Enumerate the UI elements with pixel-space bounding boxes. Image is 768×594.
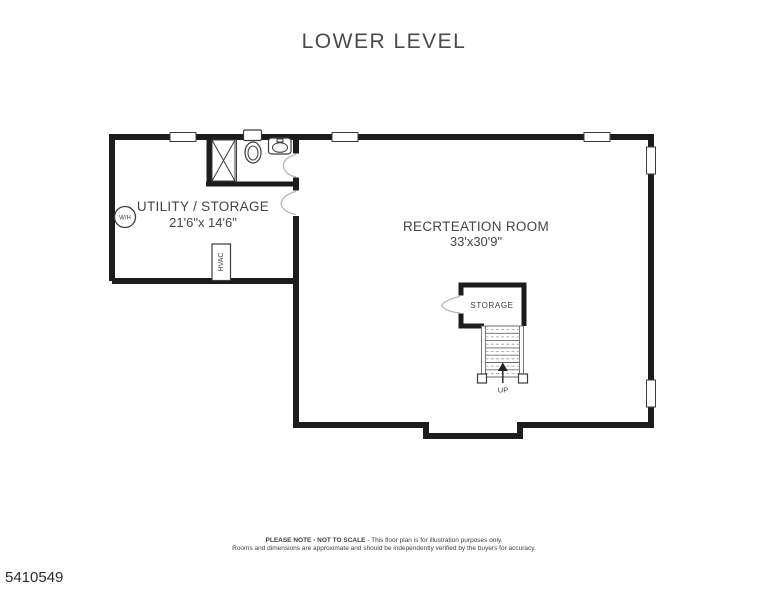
utility-door-swing — [281, 192, 296, 215]
newel-post-right — [519, 374, 528, 383]
window-right-2 — [647, 380, 656, 407]
disclaimer-rest: - This floor plan is for illustration pu… — [365, 537, 502, 544]
recreation-room-name: RECRTEATION ROOM — [403, 219, 549, 234]
water-heater-symbol: W/H — [115, 207, 136, 228]
floor-plan-page: LOWER LEVEL — [0, 0, 768, 594]
disclaimer-line1: PLEASE NOTE - NOT TO SCALE - This floor … — [0, 537, 768, 545]
disclaimer-bold: PLEASE NOTE - NOT TO SCALE — [266, 537, 366, 544]
hvac-unit: HVAC — [212, 244, 231, 281]
storage-door-swing — [442, 297, 461, 314]
utility-room-dims: 21'6"x 14'6" — [169, 215, 237, 230]
up-arrow-icon — [498, 363, 508, 384]
disclaimer: PLEASE NOTE - NOT TO SCALE - This floor … — [0, 537, 768, 552]
window-top-2 — [332, 133, 358, 142]
toilet-icon — [244, 130, 262, 163]
sink-icon — [269, 138, 292, 154]
hvac-label: HVAC — [218, 253, 225, 272]
window-top-3 — [584, 133, 610, 142]
disclaimer-line2: Rooms and dimensions are approximate and… — [0, 545, 768, 553]
windows — [170, 133, 656, 408]
outer-walls — [112, 137, 651, 436]
staircase: UP — [478, 326, 528, 395]
utility-room-name: UTILITY / STORAGE — [137, 199, 269, 214]
listing-id: 5410549 — [5, 569, 63, 586]
floor-plan-canvas: W/H HVAC UTILITY / STORAGE 21'6"x 14'6" … — [0, 0, 768, 594]
window-top-1 — [170, 133, 196, 142]
bathroom-door-swing — [283, 155, 296, 178]
newel-post-left — [478, 374, 487, 383]
storage-closet: STORAGE — [442, 285, 525, 326]
window-right-1 — [647, 147, 656, 174]
stairs-up-label: UP — [498, 386, 508, 395]
shower-icon — [212, 140, 235, 181]
water-heater-label: W/H — [119, 216, 131, 222]
recreation-room-dims: 33'x30'9" — [450, 234, 503, 249]
storage-closet-label: STORAGE — [470, 301, 513, 310]
